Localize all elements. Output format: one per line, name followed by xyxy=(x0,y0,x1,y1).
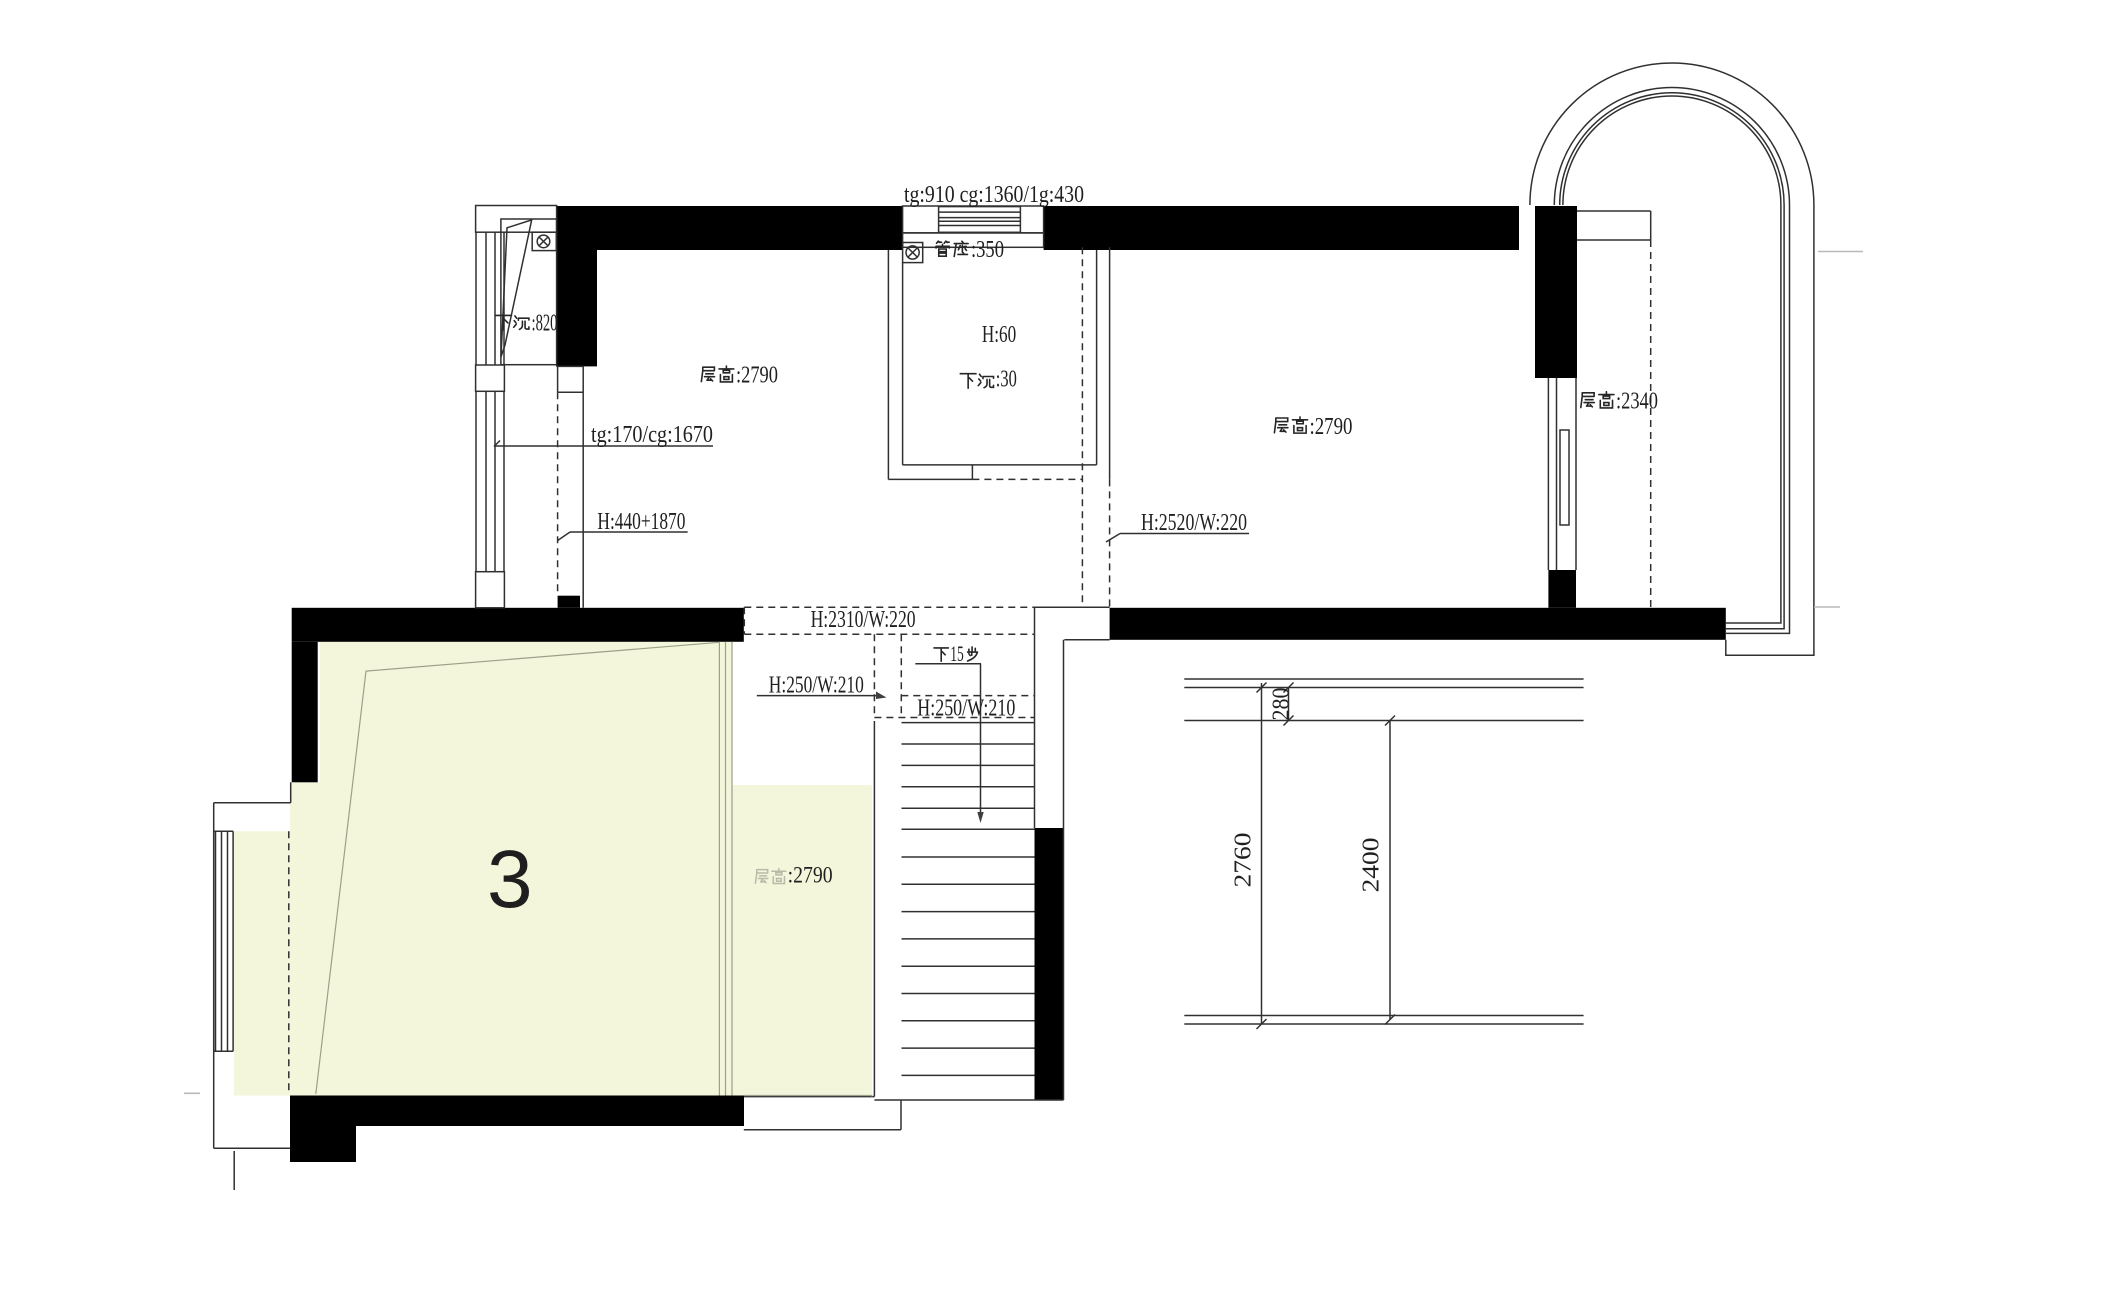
svg-text::2790: :2790 xyxy=(788,863,833,888)
svg-text:H:2310/W:220: H:2310/W:220 xyxy=(811,607,916,633)
svg-text:tg:170/cg:1670: tg:170/cg:1670 xyxy=(591,422,713,448)
svg-text:2400: 2400 xyxy=(1358,838,1384,893)
svg-text:H:60: H:60 xyxy=(982,322,1016,348)
svg-text::2790: :2790 xyxy=(1310,414,1353,440)
svg-text:H:250/W:210: H:250/W:210 xyxy=(917,695,1015,721)
svg-text::350: :350 xyxy=(971,237,1004,263)
svg-text:H:2520/W:220: H:2520/W:220 xyxy=(1141,510,1247,536)
svg-text:280: 280 xyxy=(1269,688,1295,721)
svg-text:15: 15 xyxy=(950,641,964,666)
svg-text:tg:910 cg:1360/1g:430: tg:910 cg:1360/1g:430 xyxy=(904,182,1084,208)
svg-text:H:250/W:210: H:250/W:210 xyxy=(769,672,864,698)
svg-text::30: :30 xyxy=(996,367,1017,393)
svg-text:2760: 2760 xyxy=(1230,833,1256,888)
svg-text::2340: :2340 xyxy=(1616,389,1658,415)
svg-text::820: :820 xyxy=(532,310,558,336)
svg-text:H:440+1870: H:440+1870 xyxy=(597,509,685,535)
svg-text::2790: :2790 xyxy=(736,363,778,389)
svg-text:3: 3 xyxy=(487,834,533,925)
